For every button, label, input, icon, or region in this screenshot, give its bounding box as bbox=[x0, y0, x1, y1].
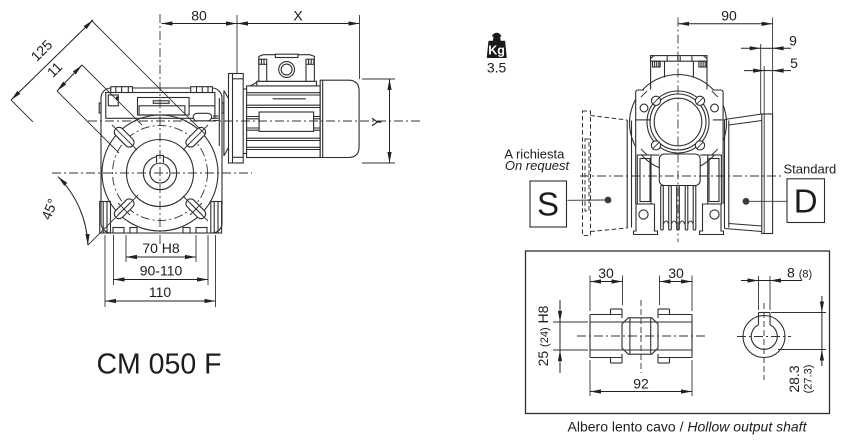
svg-text:Albero lento cavo / Hollow out: Albero lento cavo / Hollow output shaft bbox=[568, 419, 808, 435]
svg-text:30: 30 bbox=[598, 265, 614, 281]
svg-text:30: 30 bbox=[668, 265, 684, 281]
svg-text:5: 5 bbox=[790, 55, 798, 71]
svg-text:80: 80 bbox=[191, 8, 207, 24]
svg-text:70 H8: 70 H8 bbox=[142, 240, 180, 256]
svg-text:CM 050 F: CM 050 F bbox=[96, 349, 221, 381]
svg-text:90: 90 bbox=[721, 8, 737, 24]
svg-text:D: D bbox=[794, 183, 818, 220]
svg-text:Standard: Standard bbox=[784, 162, 837, 177]
svg-text:On request: On request bbox=[505, 158, 571, 173]
svg-text:3.5: 3.5 bbox=[487, 60, 507, 76]
svg-text:Kg: Kg bbox=[488, 44, 505, 58]
svg-text:92: 92 bbox=[633, 376, 649, 392]
svg-text:Y: Y bbox=[369, 117, 385, 127]
svg-text:9: 9 bbox=[789, 33, 797, 49]
svg-text:28.3: 28.3 bbox=[786, 365, 802, 392]
svg-text:S: S bbox=[537, 186, 559, 223]
svg-text:(27.3): (27.3) bbox=[803, 365, 815, 394]
svg-text:110: 110 bbox=[149, 284, 172, 300]
svg-text:90-110: 90-110 bbox=[140, 263, 183, 279]
svg-text:X: X bbox=[293, 8, 303, 24]
